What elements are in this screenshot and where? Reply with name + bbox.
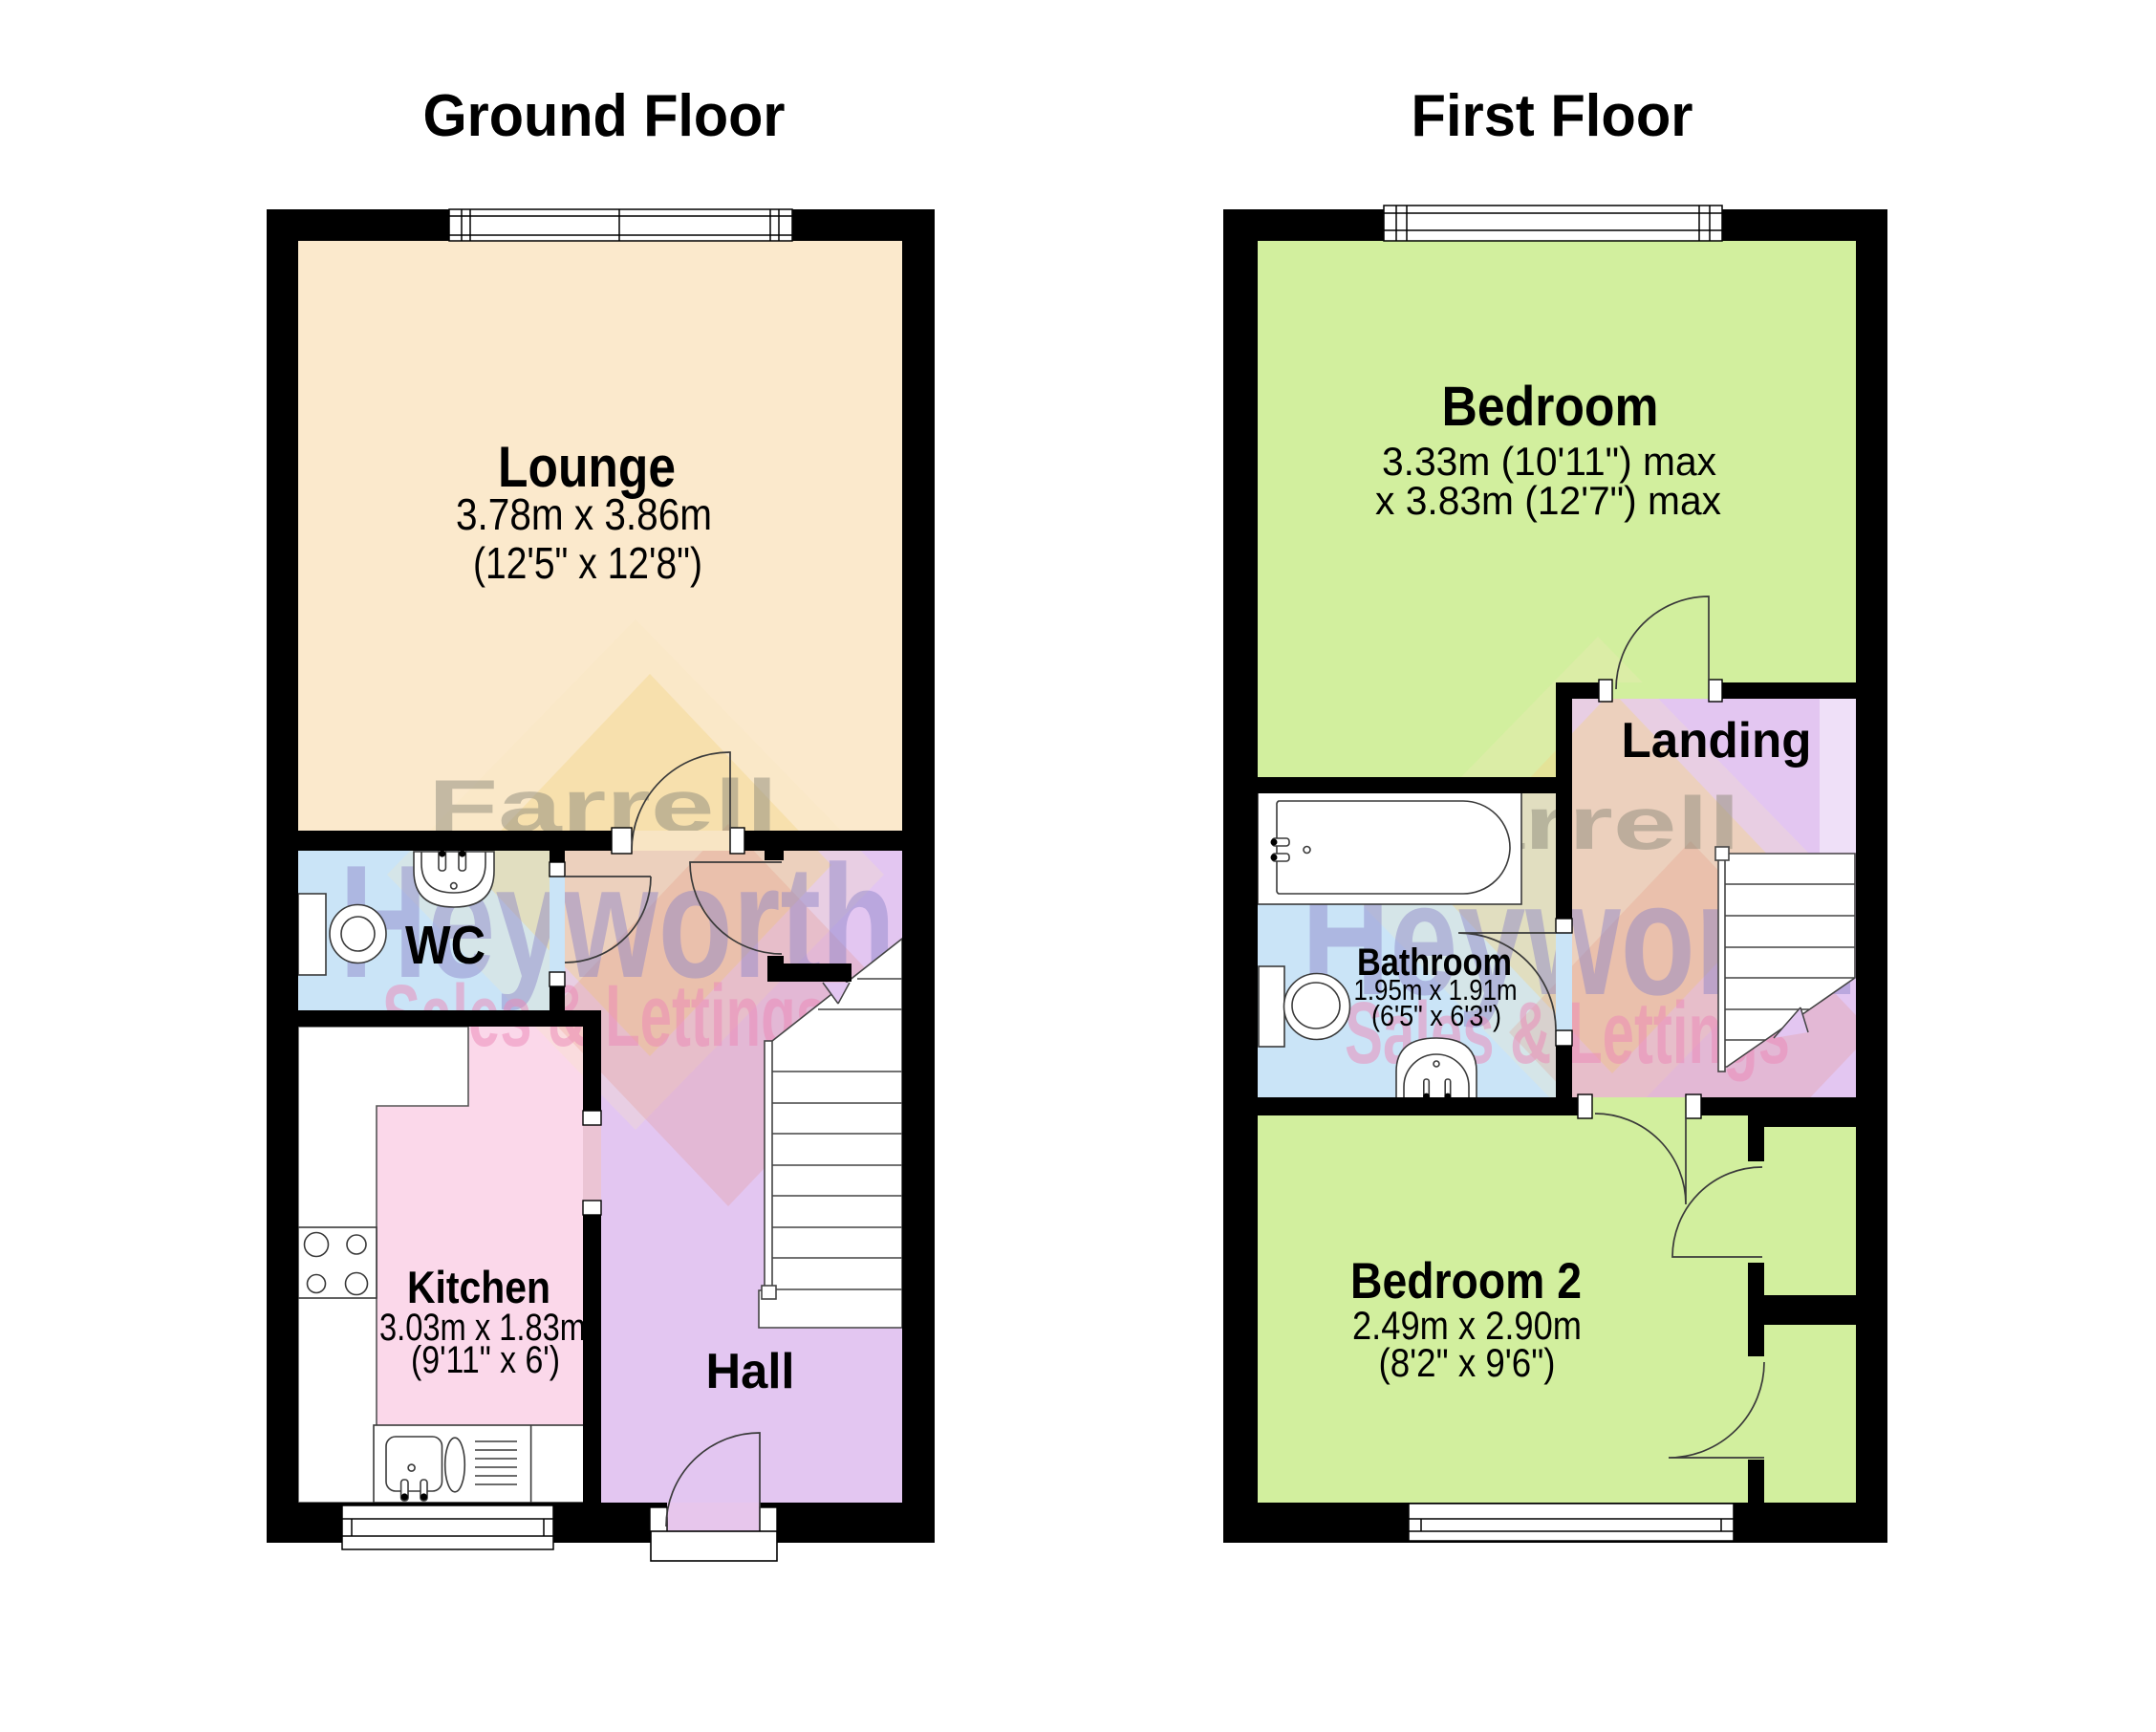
svg-text:WC: WC bbox=[405, 915, 485, 976]
svg-text:Bedroom: Bedroom bbox=[1442, 376, 1659, 438]
svg-text:(8'2" x 9'6"): (8'2" x 9'6") bbox=[1379, 1340, 1556, 1385]
svg-text:3.33m (10'11") max: 3.33m (10'11") max bbox=[1382, 439, 1716, 484]
svg-text:Kitchen: Kitchen bbox=[407, 1262, 550, 1312]
svg-text:x 3.83m (12'7") max: x 3.83m (12'7") max bbox=[1375, 478, 1721, 523]
svg-text:Bedroom 2: Bedroom 2 bbox=[1350, 1253, 1582, 1310]
svg-text:3.78m x 3.86m: 3.78m x 3.86m bbox=[456, 489, 712, 539]
svg-text:Ground Floor: Ground Floor bbox=[423, 83, 786, 149]
svg-text:Hall: Hall bbox=[706, 1344, 795, 1399]
svg-text:First Floor: First Floor bbox=[1412, 83, 1693, 149]
svg-text:(12'5" x 12'8"): (12'5" x 12'8") bbox=[473, 538, 702, 588]
svg-text:Landing: Landing bbox=[1622, 713, 1812, 769]
svg-text:(6'5" x 6'3"): (6'5" x 6'3") bbox=[1371, 999, 1501, 1032]
svg-text:(9'11" x 6'): (9'11" x 6') bbox=[411, 1339, 560, 1381]
